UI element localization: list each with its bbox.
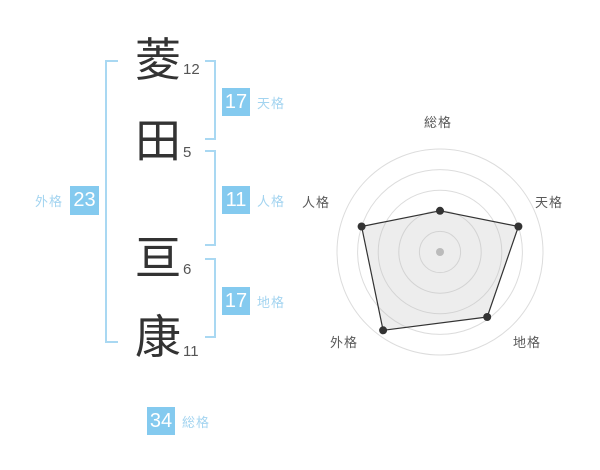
stroke-count-2: 5 bbox=[183, 144, 191, 161]
tenkaku-score: 17 天格 bbox=[222, 88, 285, 116]
radar-axis-label: 人格 bbox=[302, 195, 330, 210]
name-char-2: 田 bbox=[134, 118, 182, 164]
chikaku-score: 17 地格 bbox=[222, 287, 285, 315]
soukaku-score: 34 総格 bbox=[147, 407, 210, 435]
radar-axis-label: 外格 bbox=[330, 335, 358, 350]
jinkaku-bracket bbox=[205, 150, 216, 246]
radar-axis-label: 総格 bbox=[424, 115, 452, 130]
gaikaku-label: 外格 bbox=[35, 191, 63, 210]
radar-axis-label: 天格 bbox=[535, 195, 563, 210]
radar-chart: 総格天格地格外格人格 bbox=[290, 102, 590, 402]
radar-axis-label: 地格 bbox=[513, 335, 541, 350]
stroke-count-3: 6 bbox=[183, 261, 191, 278]
gaikaku-bracket bbox=[105, 60, 118, 343]
tenkaku-bracket bbox=[205, 60, 216, 140]
gaikaku-score: 外格 23 bbox=[35, 186, 99, 215]
jinkaku-label: 人格 bbox=[257, 191, 285, 210]
soukaku-value-badge: 34 bbox=[147, 407, 175, 435]
jinkaku-value-badge: 11 bbox=[222, 186, 250, 214]
stroke-count-4: 11 bbox=[183, 343, 199, 360]
chikaku-value-badge: 17 bbox=[222, 287, 250, 315]
gaikaku-value-badge: 23 bbox=[70, 186, 99, 215]
name-char-3: 亘 bbox=[134, 235, 182, 281]
jinkaku-score: 11 人格 bbox=[222, 186, 285, 214]
stroke-count-1: 12 bbox=[183, 61, 200, 78]
name-fortune-panel: 菱 田 亘 康 12 5 6 11 17 天格 11 人格 17 地格 外格 2… bbox=[0, 0, 600, 470]
chikaku-bracket bbox=[205, 258, 216, 338]
name-char-4: 康 bbox=[134, 314, 182, 360]
name-char-1: 菱 bbox=[134, 37, 182, 83]
soukaku-label: 総格 bbox=[182, 412, 210, 431]
tenkaku-label: 天格 bbox=[257, 93, 285, 112]
chikaku-label: 地格 bbox=[257, 292, 285, 311]
tenkaku-value-badge: 17 bbox=[222, 88, 250, 116]
